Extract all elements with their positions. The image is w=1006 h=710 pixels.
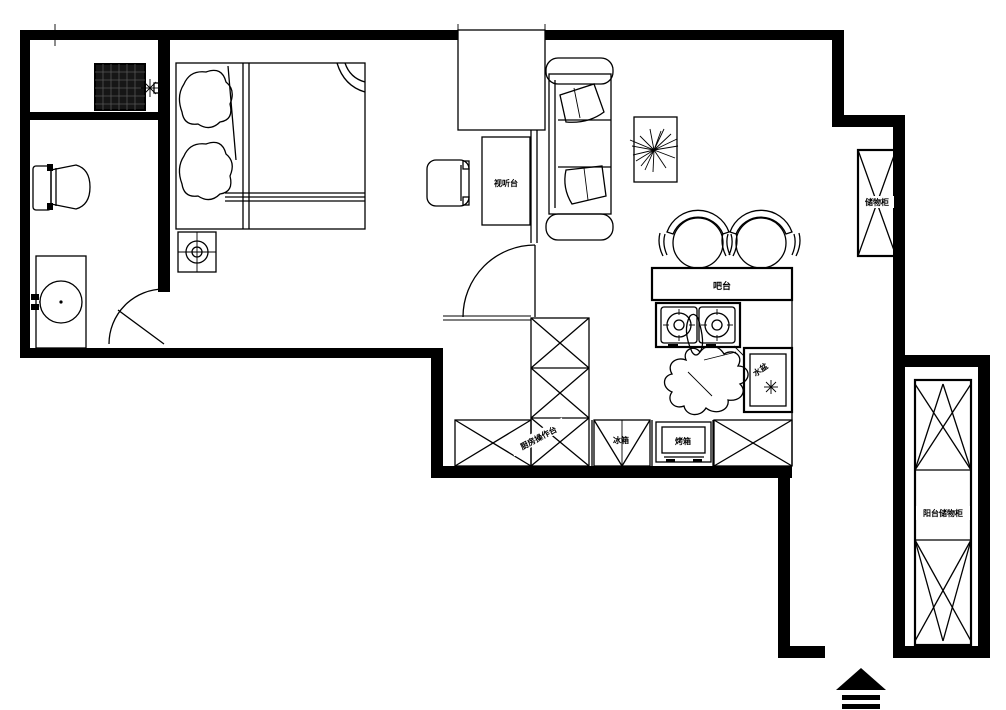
double-bed <box>176 63 365 229</box>
fridge-label: 冰箱 <box>613 435 629 445</box>
vanity-basin <box>31 256 86 348</box>
balcony-cabinet-label: 阳台储物柜 <box>923 508 963 518</box>
dining-chair <box>659 210 737 268</box>
oven: 烤箱 <box>656 422 711 462</box>
kitchen: 厨房操作台 冰箱 烤箱 <box>455 318 792 466</box>
tv-console-label: 视听台 <box>494 178 518 188</box>
toilet <box>33 164 90 210</box>
bathroom-door-swing <box>109 289 164 344</box>
plant-table <box>630 117 678 182</box>
sink-cabinet: 水盆 <box>734 346 792 412</box>
wall-cabinet: 储物柜 <box>858 150 896 256</box>
wall-cabinet-label: 储物柜 <box>864 197 889 207</box>
tall-storage-cabinet: 阳台储物柜 <box>915 380 971 645</box>
dining-chair <box>722 210 800 268</box>
sofa <box>546 58 613 240</box>
hall-door-swing <box>463 245 535 317</box>
throw-blanket <box>565 166 606 204</box>
gas-stove <box>656 303 740 348</box>
l-shaped-counter: 厨房操作台 <box>455 318 589 466</box>
floor-plan-page: 视听台 <box>0 0 1006 710</box>
sink-label: 水盆 <box>750 360 770 379</box>
washing-machine <box>95 64 145 110</box>
nightstand-with-lamp <box>178 232 216 272</box>
bar-label: 吧台 <box>713 280 731 292</box>
base-cabinet <box>714 420 792 466</box>
bar-counter: 吧台 <box>652 268 792 466</box>
bedroom <box>176 63 365 272</box>
drain-icon <box>764 380 778 394</box>
armchair <box>427 160 469 206</box>
floor-plan-drawing: 视听台 <box>0 0 1006 710</box>
entrance-arrow-icon <box>836 668 886 709</box>
walls <box>20 24 990 658</box>
pillow <box>179 142 232 199</box>
oven-label: 烤箱 <box>675 436 691 446</box>
hallway: 视听台 <box>427 137 535 317</box>
plant-icon <box>630 129 678 172</box>
pillow <box>179 70 232 127</box>
refrigerator: 冰箱 <box>594 420 650 466</box>
bathroom <box>31 64 164 348</box>
throw-blanket <box>560 84 604 122</box>
tv-console: 视听台 <box>482 137 530 225</box>
